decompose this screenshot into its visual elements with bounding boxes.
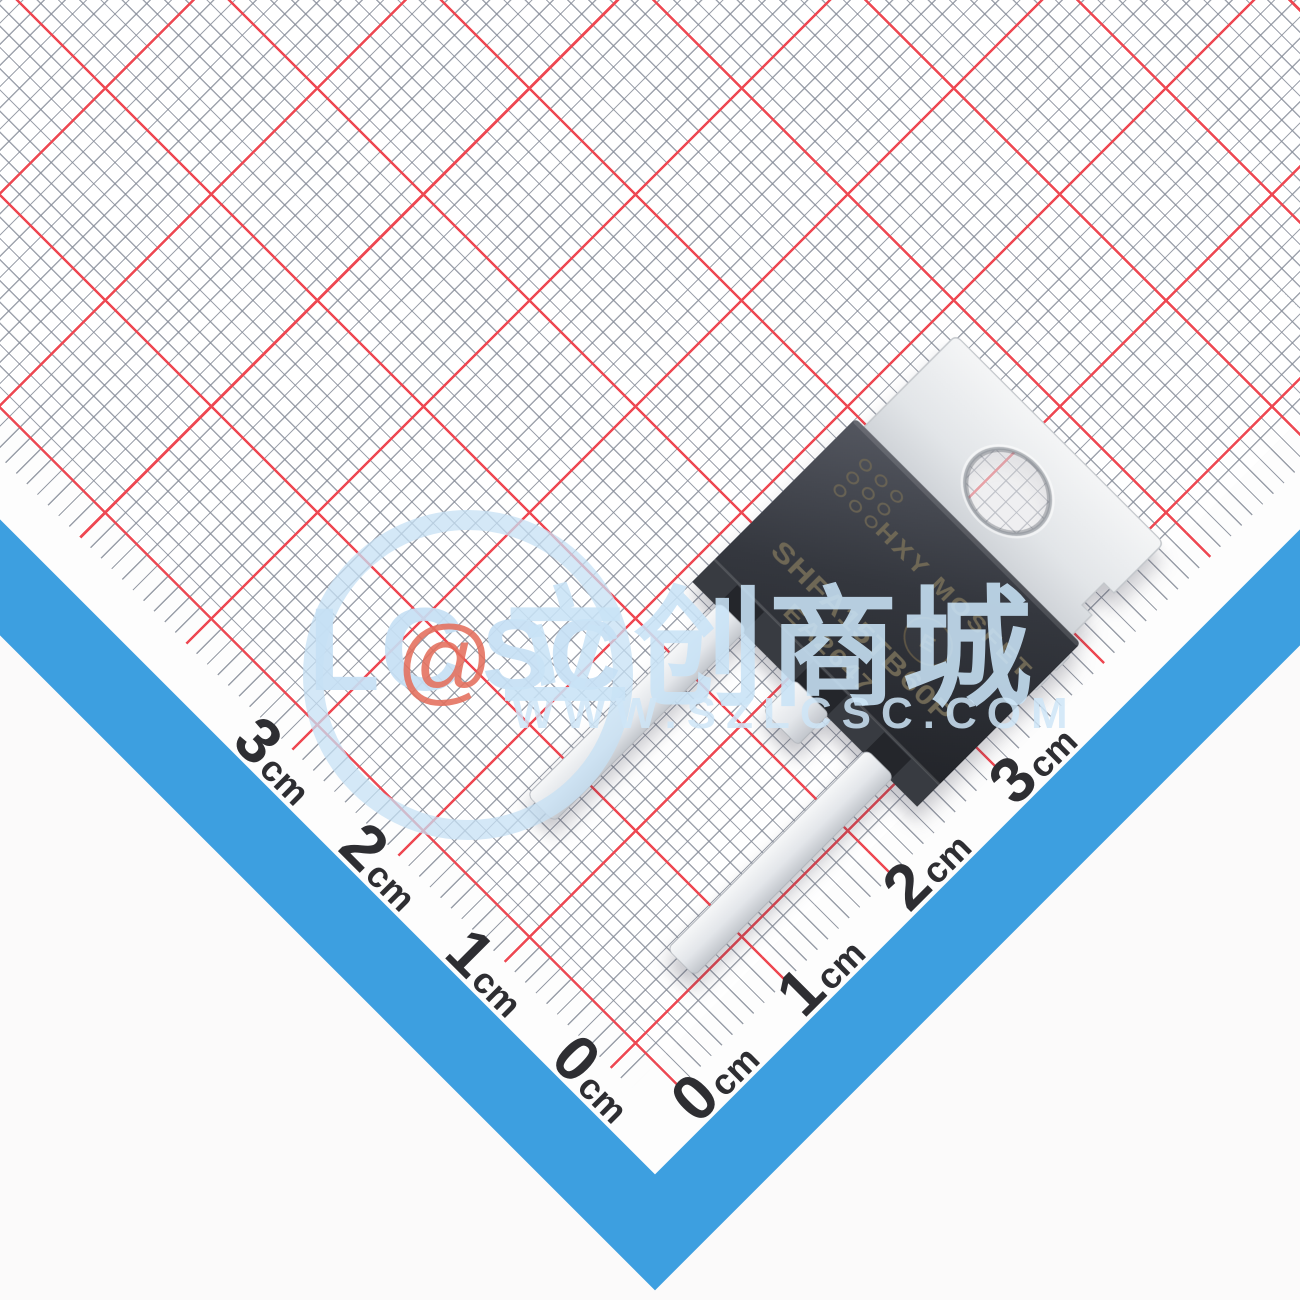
photo-stage: 3cm 2cm 1cm 0cm 0cm 1cm 2cm 3cm — [0, 0, 1300, 1300]
